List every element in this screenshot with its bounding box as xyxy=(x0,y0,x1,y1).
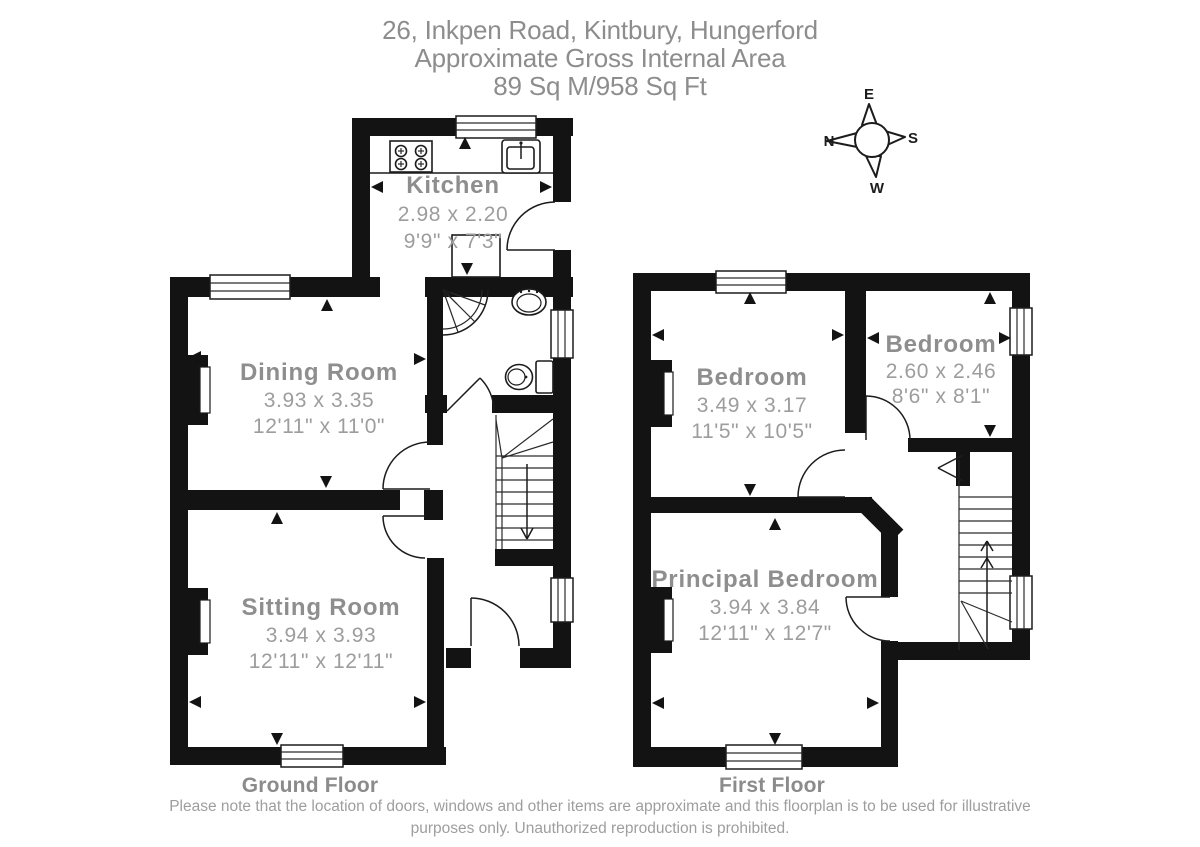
address-title: 26, Inkpen Road, Kintbury, Hungerford xyxy=(382,15,818,45)
compass-rose: E S W N xyxy=(824,86,918,197)
principal-bedroom-window xyxy=(726,745,802,769)
kitchen-label: Kitchen 2.98 x 2.20 9'9" x 7'3" xyxy=(398,172,509,253)
bedroom1-metric: 3.49 x 3.17 xyxy=(697,394,808,417)
dining-room-window xyxy=(210,275,290,299)
bathroom-window xyxy=(551,310,573,358)
kitchen-back-door xyxy=(507,202,555,250)
hob-icon xyxy=(390,141,432,172)
kitchen-sink-icon xyxy=(502,140,540,173)
sitting-room-window xyxy=(281,745,343,767)
principal-chimney xyxy=(651,587,673,653)
first-floor-label: First Floor xyxy=(719,774,825,797)
bedroom1-name: Bedroom xyxy=(697,364,808,391)
first-floor-plan: Bedroom 3.49 x 3.17 11'5" x 10'5" Bedroo… xyxy=(633,271,1032,797)
bedroom1-imperial: 11'5" x 10'5" xyxy=(691,420,812,443)
compass-point-top xyxy=(862,104,877,125)
disclaimer-block: Please note that the location of doors, … xyxy=(169,798,1031,837)
principal-bedroom-door xyxy=(846,597,890,641)
disclaimer-line1: Please note that the location of doors, … xyxy=(169,798,1031,815)
ground-floor-stairs xyxy=(496,415,553,549)
kitchen-name: Kitchen xyxy=(406,172,500,199)
bedroom1-label: Bedroom 3.49 x 3.17 11'5" x 10'5" xyxy=(691,364,812,443)
principal-metric: 3.94 x 3.84 xyxy=(710,596,821,619)
kitchen-imperial: 9'9" x 7'3" xyxy=(404,230,502,253)
first-floor-stairs xyxy=(959,460,1012,650)
bedroom1-window xyxy=(716,271,786,293)
area-subtitle: Approximate Gross Internal Area xyxy=(415,43,787,73)
dining-metric: 3.93 x 3.35 xyxy=(264,389,375,412)
dining-name: Dining Room xyxy=(240,359,398,386)
area-value: 89 Sq M/958 Sq Ft xyxy=(493,71,707,101)
bedroom2-name: Bedroom xyxy=(886,331,997,358)
compass-circle xyxy=(855,123,889,157)
sitting-name: Sitting Room xyxy=(242,594,401,621)
bedroom2-label: Bedroom 2.60 x 2.46 8'6" x 8'1" xyxy=(886,331,997,408)
title-block: 26, Inkpen Road, Kintbury, Hungerford Ap… xyxy=(382,15,818,101)
stairwell-window xyxy=(1010,576,1032,629)
bathroom-door xyxy=(447,378,494,411)
floorplan-page: 26, Inkpen Road, Kintbury, Hungerford Ap… xyxy=(0,0,1200,847)
principal-imperial: 12'11" x 12'7" xyxy=(698,622,832,645)
compass-label-n: N xyxy=(824,133,835,150)
bedroom1-door xyxy=(798,450,845,497)
dining-imperial: 12'11" x 11'0" xyxy=(253,415,385,438)
dining-room-label: Dining Room 3.93 x 3.35 12'11" x 11'0" xyxy=(240,359,398,438)
ground-floor-label: Ground Floor xyxy=(242,774,379,797)
compass-point-bottom xyxy=(866,156,881,177)
kitchen-metric: 2.98 x 2.20 xyxy=(398,203,509,226)
basin-icon xyxy=(512,289,546,315)
dining-room-door xyxy=(383,442,430,489)
sitting-room-door xyxy=(383,516,425,558)
toilet-icon xyxy=(506,361,554,393)
compass-label-w: W xyxy=(870,180,885,197)
hall-window xyxy=(551,578,573,622)
sitting-imperial: 12'11" x 12'11" xyxy=(249,650,393,673)
principal-name: Principal Bedroom xyxy=(652,566,879,593)
ground-floor-plan: Kitchen 2.98 x 2.20 9'9" x 7'3" Dining R… xyxy=(170,116,573,797)
front-door xyxy=(471,598,519,646)
kitchen-window xyxy=(456,116,536,138)
disclaimer-line2: purposes only. Unauthorized reproduction… xyxy=(411,820,790,837)
compass-label-e: E xyxy=(864,86,874,103)
dining-room-chimney xyxy=(186,355,210,425)
principal-bedroom-label: Principal Bedroom 3.94 x 3.84 12'11" x 1… xyxy=(652,566,879,645)
bedroom2-imperial: 8'6" x 8'1" xyxy=(892,385,990,408)
bedroom2-metric: 2.60 x 2.46 xyxy=(886,360,997,383)
compass-label-s: S xyxy=(908,130,918,147)
sitting-room-label: Sitting Room 3.94 x 3.93 12'11" x 12'11" xyxy=(242,594,401,673)
sitting-room-chimney xyxy=(186,588,210,655)
bedroom1-chimney xyxy=(651,360,673,427)
sitting-metric: 3.94 x 3.93 xyxy=(266,624,377,647)
bedroom2-window xyxy=(1010,308,1032,355)
